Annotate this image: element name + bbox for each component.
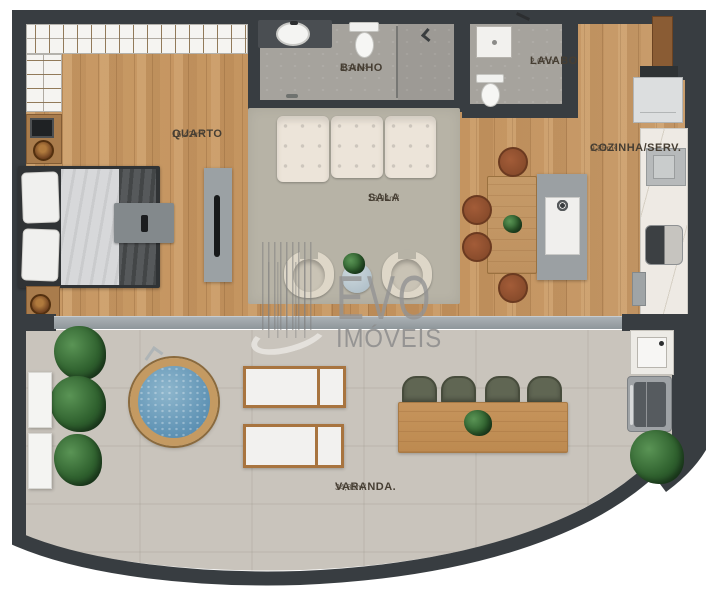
- banho-wall-right: [454, 10, 470, 104]
- outdoor-chair: [402, 376, 437, 405]
- sofa-module: [385, 116, 436, 178]
- grill-lid: [634, 382, 666, 427]
- pillow: [21, 171, 60, 223]
- sink-basin-icon: [653, 155, 675, 179]
- sink-icon: [276, 22, 310, 46]
- toilet-tank: [349, 22, 379, 32]
- plant-icon: [54, 434, 102, 486]
- armchair-seat: [293, 259, 325, 292]
- armchair-opening: [398, 250, 416, 259]
- floorplan-canvas: QUARTO 16,42m² BANHO 4,34m² LAVABO 2,07m…: [0, 0, 710, 600]
- armchair: [284, 251, 334, 298]
- duvet: [61, 169, 119, 285]
- room-area: 34,81m²: [335, 482, 366, 492]
- lavabo-wall-bottom: [462, 104, 578, 118]
- closet-hanger-rail-left: [26, 54, 62, 112]
- lounger-fold-bar: [317, 369, 320, 405]
- wall-stub-left: [12, 314, 56, 331]
- closet-hanger-rail-top: [26, 24, 248, 54]
- service-shelf: [640, 66, 678, 77]
- outdoor-chair: [527, 376, 562, 405]
- toilet-tank: [476, 74, 504, 83]
- toilet-icon: [481, 83, 500, 107]
- faucet-icon: [290, 21, 298, 25]
- bench-remote: [141, 215, 148, 232]
- plant-icon: [464, 410, 492, 436]
- armchair: [382, 251, 432, 298]
- varanda-floor: [26, 330, 672, 571]
- outdoor-chair: [485, 376, 520, 405]
- dining-chair: [462, 232, 492, 262]
- plant-fern: [54, 326, 106, 380]
- tv-icon: [214, 195, 220, 257]
- sun-lounger: [243, 424, 344, 468]
- sofa-module: [277, 116, 329, 182]
- sofa-module: [331, 116, 383, 178]
- room-area: 16,42m²: [172, 129, 203, 139]
- pillow: [21, 228, 60, 281]
- fridge-door-line: [640, 112, 676, 113]
- outdoor-sink-counter: [630, 330, 674, 375]
- picture-frame: [30, 118, 54, 138]
- plant-icon: [50, 376, 106, 432]
- room-area: 13,94m²: [368, 193, 399, 203]
- decor-tray-lower: [30, 294, 51, 315]
- sun-lounger: [243, 366, 346, 408]
- tv-panel: [204, 168, 232, 282]
- shower-tray: [476, 26, 512, 58]
- bed-foot-bench: [114, 203, 174, 243]
- faucet-icon: [659, 341, 664, 346]
- dining-chair: [498, 147, 528, 177]
- armchair-opening: [300, 250, 318, 259]
- room-area: 2,07m²: [530, 56, 556, 66]
- bbq-grill: [627, 376, 672, 432]
- planter-bench: [28, 372, 52, 428]
- outdoor-chair: [441, 376, 476, 405]
- room-area: 9,85m²: [590, 143, 616, 153]
- armchair-seat: [391, 259, 423, 292]
- grill-handle-icon: [630, 385, 633, 425]
- plant-icon: [343, 253, 365, 274]
- sliding-glass-door: [54, 316, 624, 329]
- wall-stub-right: [622, 314, 706, 331]
- plant-icon: [503, 215, 522, 233]
- washer-unit: [632, 272, 646, 306]
- toilet-icon: [355, 32, 374, 58]
- drain-icon: [492, 40, 497, 45]
- burner-icon: [557, 200, 568, 211]
- lounger-fold-bar: [315, 427, 318, 465]
- decor-tray-upper: [33, 140, 54, 161]
- plant-icon: [630, 430, 684, 484]
- planter-bench: [28, 433, 52, 489]
- room-area: 4,34m²: [340, 63, 366, 73]
- dining-chair: [462, 195, 492, 225]
- fridge: [633, 77, 683, 123]
- plunge-pool: [130, 358, 218, 446]
- cooktop: [545, 197, 580, 255]
- dining-chair: [498, 273, 528, 303]
- built-in-appliance: [645, 225, 683, 265]
- drain-icon: [286, 94, 298, 98]
- shower-glass-divider: [396, 26, 398, 98]
